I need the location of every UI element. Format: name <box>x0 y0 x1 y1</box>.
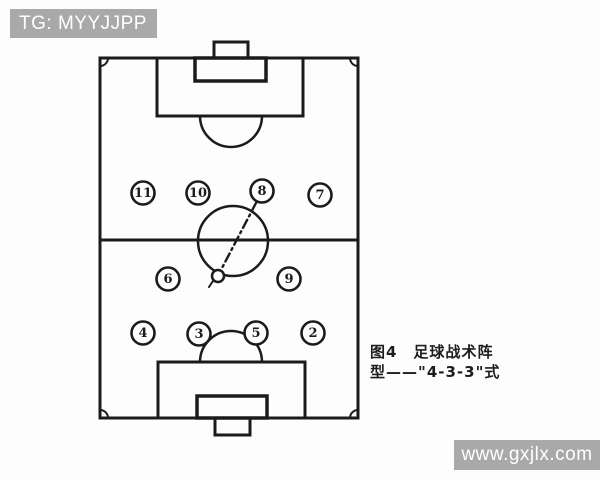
pitch-boundary <box>100 58 358 418</box>
players-layer: 111087694352 <box>132 180 332 346</box>
player-number: 8 <box>257 184 266 199</box>
movement-dashed-line <box>222 203 256 268</box>
player-marker: 9 <box>278 268 301 291</box>
player-marker: 7 <box>309 184 332 207</box>
ball-icon <box>212 270 224 282</box>
player-marker: 10 <box>187 182 210 205</box>
figure-caption: 图4 足球战术阵 型——"4-3-3"式 <box>370 342 535 382</box>
pitch-diagram: 111087694352 <box>0 0 600 480</box>
bottom-goal-area <box>197 396 267 418</box>
watermark-top-left: TG: MYYJJPP <box>10 9 157 38</box>
player-number: 4 <box>138 326 147 341</box>
top-penalty-area <box>157 58 303 116</box>
player-number: 11 <box>134 186 152 201</box>
top-goal <box>214 42 248 58</box>
player-marker: 2 <box>302 322 325 345</box>
bottom-goal <box>215 418 250 435</box>
player-number: 6 <box>163 272 172 287</box>
player-marker: 11 <box>132 182 155 205</box>
player-number: 10 <box>189 186 207 201</box>
top-goal-area <box>195 58 266 81</box>
top-penalty-arc <box>200 116 262 147</box>
player-marker: 3 <box>188 323 211 346</box>
caption-line-1: 图4 足球战术阵 <box>370 342 535 362</box>
player-marker: 8 <box>251 180 274 203</box>
player-number: 7 <box>315 188 324 203</box>
scanned-page: 111087694352 图4 足球战术阵 型——"4-3-3"式 TG: MY… <box>0 0 600 480</box>
player-number: 3 <box>194 327 203 342</box>
player-marker: 5 <box>245 322 268 345</box>
ball-pen-stroke <box>209 281 213 287</box>
watermark-bottom-right: www.gxjlx.com <box>454 440 600 470</box>
bottom-penalty-area <box>158 362 305 418</box>
player-number: 5 <box>251 326 260 341</box>
player-number: 9 <box>284 272 293 287</box>
player-marker: 6 <box>157 268 180 291</box>
player-marker: 4 <box>132 322 155 345</box>
player-number: 2 <box>308 326 317 341</box>
caption-line-2: 型——"4-3-3"式 <box>370 362 535 382</box>
